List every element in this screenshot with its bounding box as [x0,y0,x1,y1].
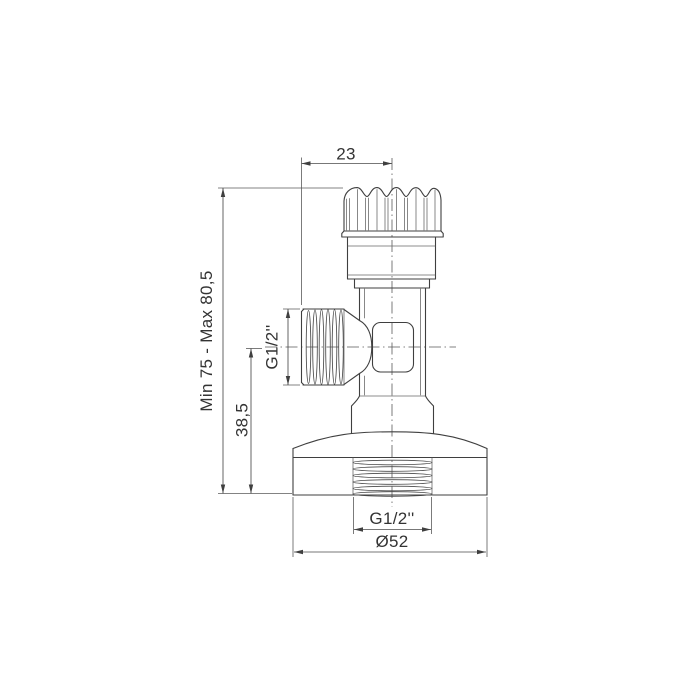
arrow-down [249,485,253,494]
base-cone-right [426,396,434,434]
arrow-right [383,161,392,165]
dim-text-diameter: Ø52 [375,532,408,551]
arrow-down [286,376,290,385]
base-thread-ridges [353,460,432,496]
arrow-left [302,161,311,165]
arrow-right [422,527,431,531]
outlet-transition-top [344,310,360,321]
valve-body-pipe [360,288,426,396]
dim-text-385: 38,5 [233,403,252,437]
arrow-up [249,349,253,358]
valve-bonnet [348,237,436,288]
base-dome-curve [293,432,487,449]
handle-scalloped-top [344,188,441,201]
arrow-left [354,527,363,531]
drawing-page: 23 Min 75 - Max 80,5 38,5 G1/2'' G1/2'' [0,0,700,700]
valve-handle [342,188,443,237]
dim-text-bottom-thread: G1/2'' [369,509,414,528]
dim-text-23: 23 [336,145,356,164]
arrow-down [221,485,225,494]
arrow-right [477,550,486,554]
handle-knurl-lines [347,190,436,231]
arrow-left [294,550,303,554]
dimension-bottom-thread: G1/2'' [354,497,432,534]
outlet-transition-bottom [344,374,360,385]
dim-text-side-thread: G1/2'' [263,324,282,369]
arrow-up [221,188,225,197]
valve-base [293,396,487,496]
dim-text-height-range: Min 75 - Max 80,5 [197,270,216,411]
technical-drawing-canvas: 23 Min 75 - Max 80,5 38,5 G1/2'' G1/2'' [0,0,700,700]
arrow-up [286,309,290,318]
handle-lip [342,231,443,237]
base-cone-left [352,396,360,434]
